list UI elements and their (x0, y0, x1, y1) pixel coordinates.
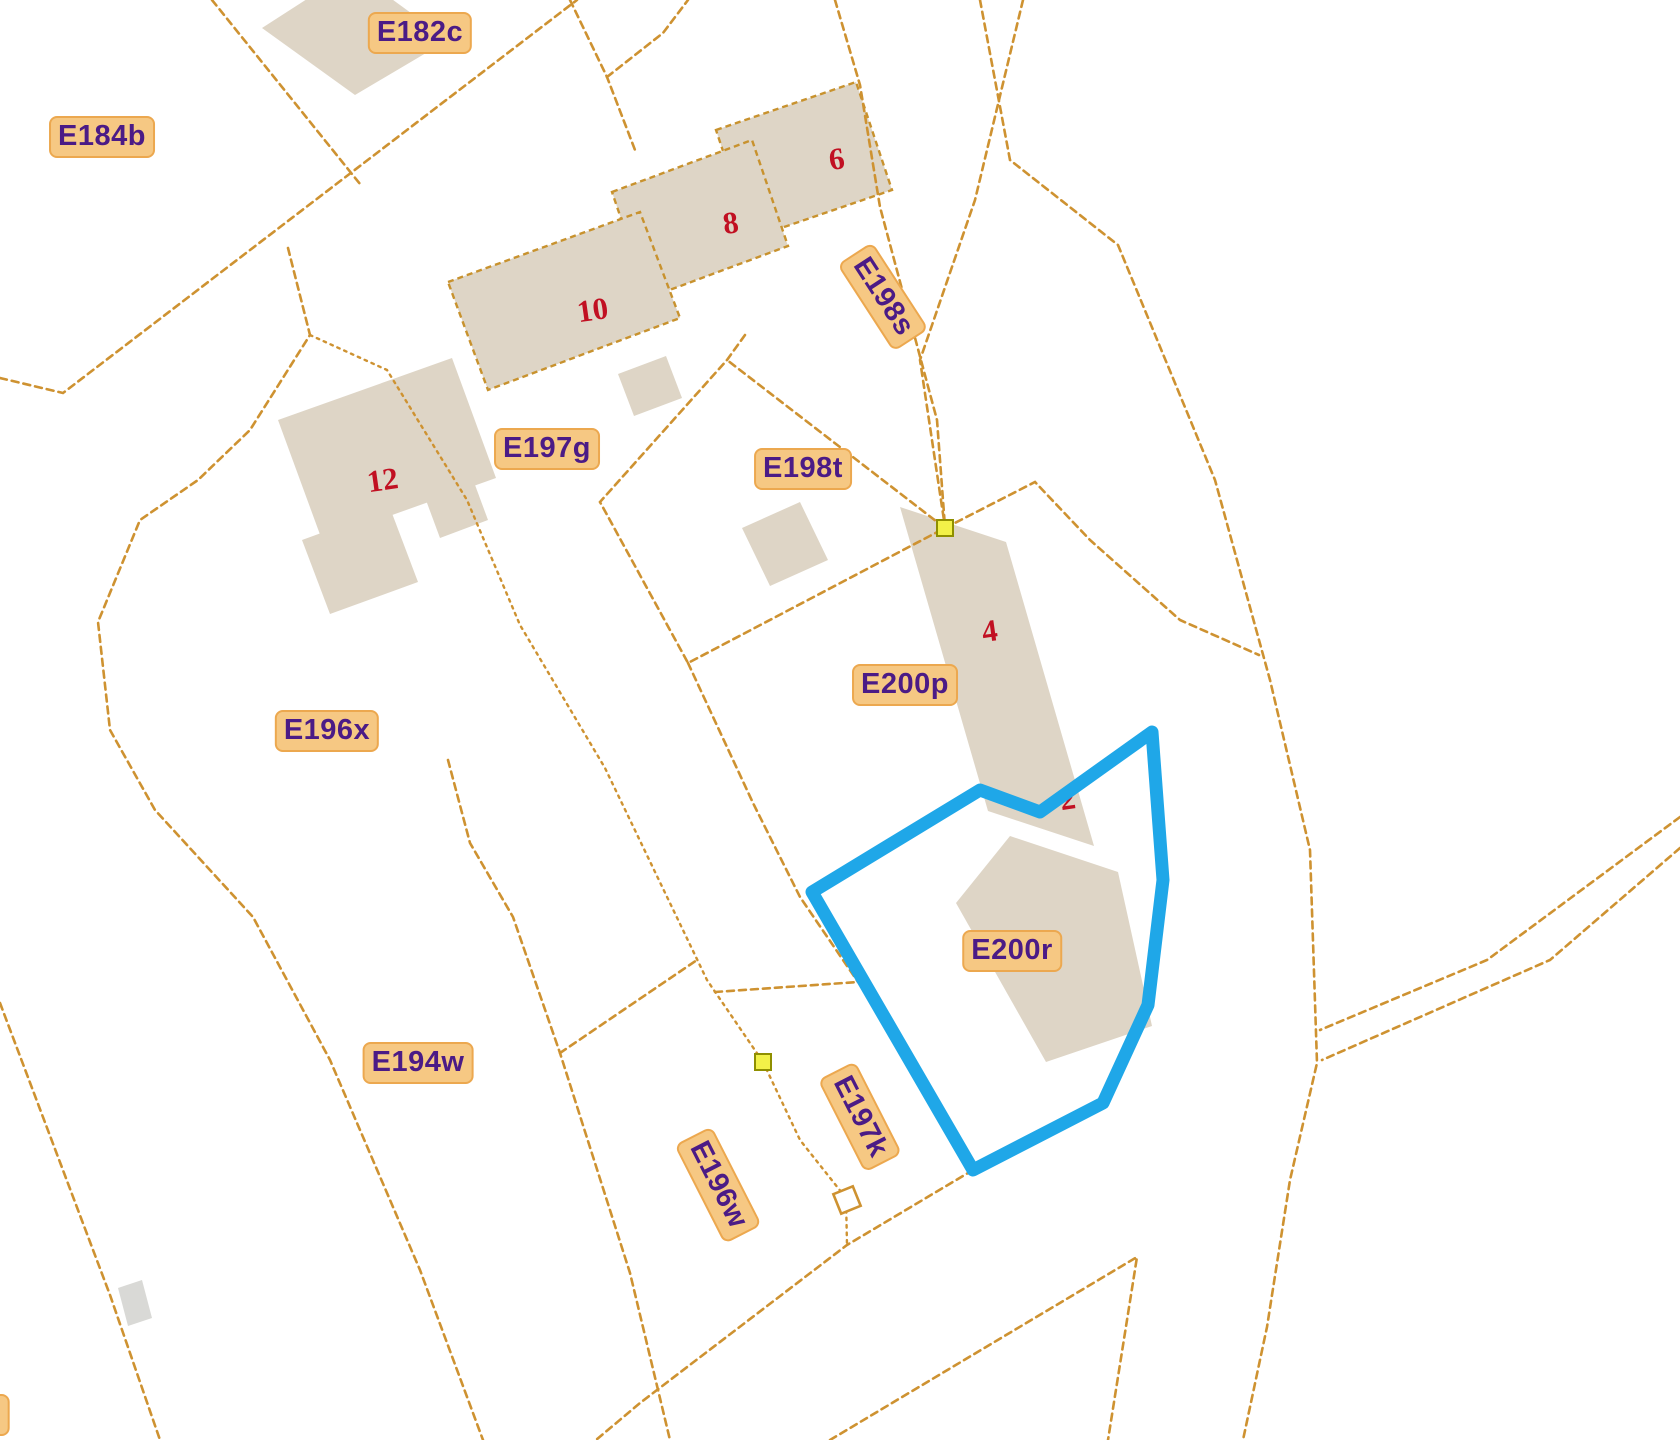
parcel-label-E197k[interactable]: E197k (818, 1061, 903, 1173)
parcel-label-E182c[interactable]: E182c (368, 12, 472, 54)
cadastral-map[interactable]: 68101242 E182cE184bE197gE198tE198sE196xE… (0, 0, 1680, 1440)
parcel-label-E184b[interactable]: E184b (49, 116, 155, 158)
parcel-labels-layer: E182cE184bE197gE198tE198sE196xE200pE200r… (0, 0, 1680, 1440)
parcel-label-E196x[interactable]: E196x (275, 710, 379, 752)
parcel-label-2[interactable]: 2 (0, 1394, 9, 1436)
parcel-label-E198t[interactable]: E198t (754, 448, 852, 490)
parcel-label-E200r[interactable]: E200r (962, 930, 1062, 972)
parcel-label-E197g[interactable]: E197g (494, 428, 600, 470)
parcel-label-E200p[interactable]: E200p (852, 664, 958, 706)
parcel-label-E194w[interactable]: E194w (363, 1042, 474, 1084)
parcel-label-E196w[interactable]: E196w (674, 1126, 762, 1244)
parcel-label-E198s[interactable]: E198s (837, 242, 929, 352)
